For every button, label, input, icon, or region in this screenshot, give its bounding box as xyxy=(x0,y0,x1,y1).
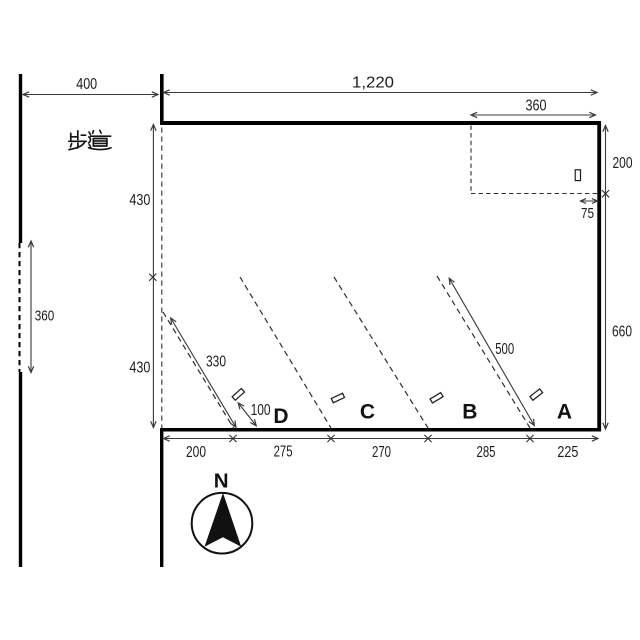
svg-text:430: 430 xyxy=(129,192,150,209)
svg-text:B: B xyxy=(462,400,477,423)
svg-text:500: 500 xyxy=(495,341,514,358)
svg-text:400: 400 xyxy=(76,76,97,93)
svg-text:660: 660 xyxy=(612,323,632,340)
svg-text:100: 100 xyxy=(251,402,271,419)
svg-text:A: A xyxy=(557,400,572,423)
svg-text:275: 275 xyxy=(274,444,293,461)
svg-text:D: D xyxy=(273,405,288,428)
svg-text:N: N xyxy=(214,470,229,493)
svg-text:75: 75 xyxy=(581,205,594,222)
svg-text:270: 270 xyxy=(372,444,391,461)
svg-text:360: 360 xyxy=(35,307,55,324)
svg-text:330: 330 xyxy=(206,353,226,370)
svg-text:285: 285 xyxy=(477,444,496,461)
svg-text:200: 200 xyxy=(186,444,206,461)
svg-text:225: 225 xyxy=(557,444,578,461)
svg-text:C: C xyxy=(360,400,375,423)
svg-text:360: 360 xyxy=(526,97,547,114)
svg-text:1,220: 1,220 xyxy=(352,74,394,91)
svg-text:200: 200 xyxy=(613,155,633,172)
svg-text:430: 430 xyxy=(129,359,150,376)
